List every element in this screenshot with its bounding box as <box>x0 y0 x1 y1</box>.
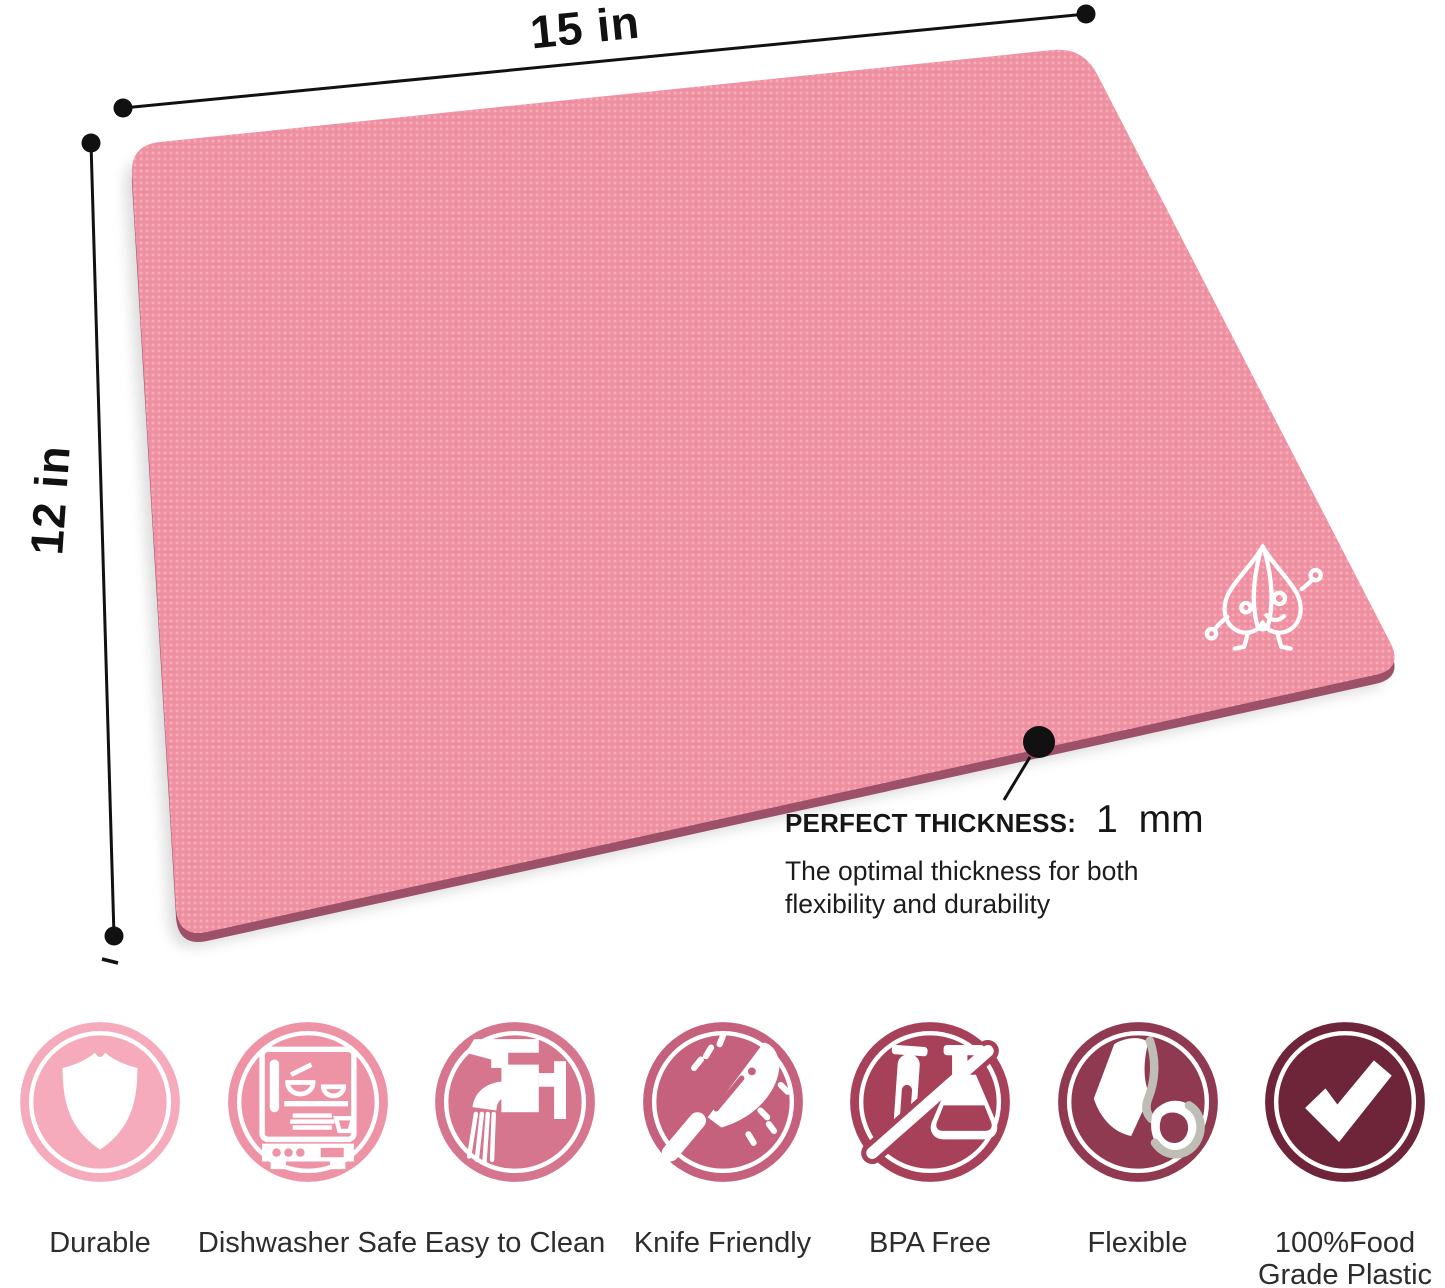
knife-icon <box>638 1017 808 1187</box>
feature-durable: Durable <box>6 1017 194 1288</box>
shield-icon <box>15 1017 185 1187</box>
callout-title: PERFECT THICKNESS: <box>785 808 1076 839</box>
callout-dot <box>1023 726 1055 758</box>
dishwasher-icon <box>223 1017 393 1187</box>
checkmark-icon <box>1260 1017 1430 1187</box>
feature-row: Durable <box>0 1017 1445 1288</box>
mat-diagram <box>0 0 1445 1000</box>
callout-description-line2: flexibility and durability <box>785 888 1215 921</box>
dimension-endpoint-dot <box>82 134 101 153</box>
feature-label: Knife Friendly <box>634 1227 811 1259</box>
callout-description-line1: The optimal thickness for both <box>785 855 1215 888</box>
feature-label: Dishwasher Safe <box>198 1227 417 1259</box>
feature-easy-to-clean: Easy to Clean <box>421 1017 609 1288</box>
feature-flexible: Flexible <box>1044 1017 1232 1288</box>
product-infographic: 15 in 12 in PERFECT THICKNESS: 1 mm The … <box>0 0 1445 1288</box>
faucet-icon <box>430 1017 600 1187</box>
feature-label: 100%Food Grade Plastic <box>1254 1227 1436 1288</box>
callout-value: 1 mm <box>1096 798 1204 842</box>
feature-label: Durable <box>49 1227 151 1259</box>
feature-dishwasher-safe: Dishwasher Safe <box>214 1017 402 1288</box>
dimension-endpoint-dot <box>1077 5 1096 24</box>
flexible-mat-icon <box>1053 1017 1223 1187</box>
feature-bpa-free: BPA Free <box>836 1017 1024 1288</box>
callout-title-row: PERFECT THICKNESS: 1 mm <box>785 798 1215 842</box>
thickness-callout: PERFECT THICKNESS: 1 mm The optimal thic… <box>785 798 1215 921</box>
height-dimension-line <box>82 134 124 964</box>
feature-label: Easy to Clean <box>425 1227 606 1259</box>
feature-label: BPA Free <box>869 1227 991 1259</box>
dimension-endpoint-dot <box>105 927 124 946</box>
feature-knife-friendly: Knife Friendly <box>629 1017 817 1288</box>
no-bpa-icon <box>845 1017 1015 1187</box>
dimension-tick <box>102 959 118 963</box>
feature-label: Flexible <box>1088 1227 1188 1259</box>
feature-food-grade: 100%Food Grade Plastic <box>1251 1017 1439 1288</box>
dimension-endpoint-dot <box>114 99 133 118</box>
